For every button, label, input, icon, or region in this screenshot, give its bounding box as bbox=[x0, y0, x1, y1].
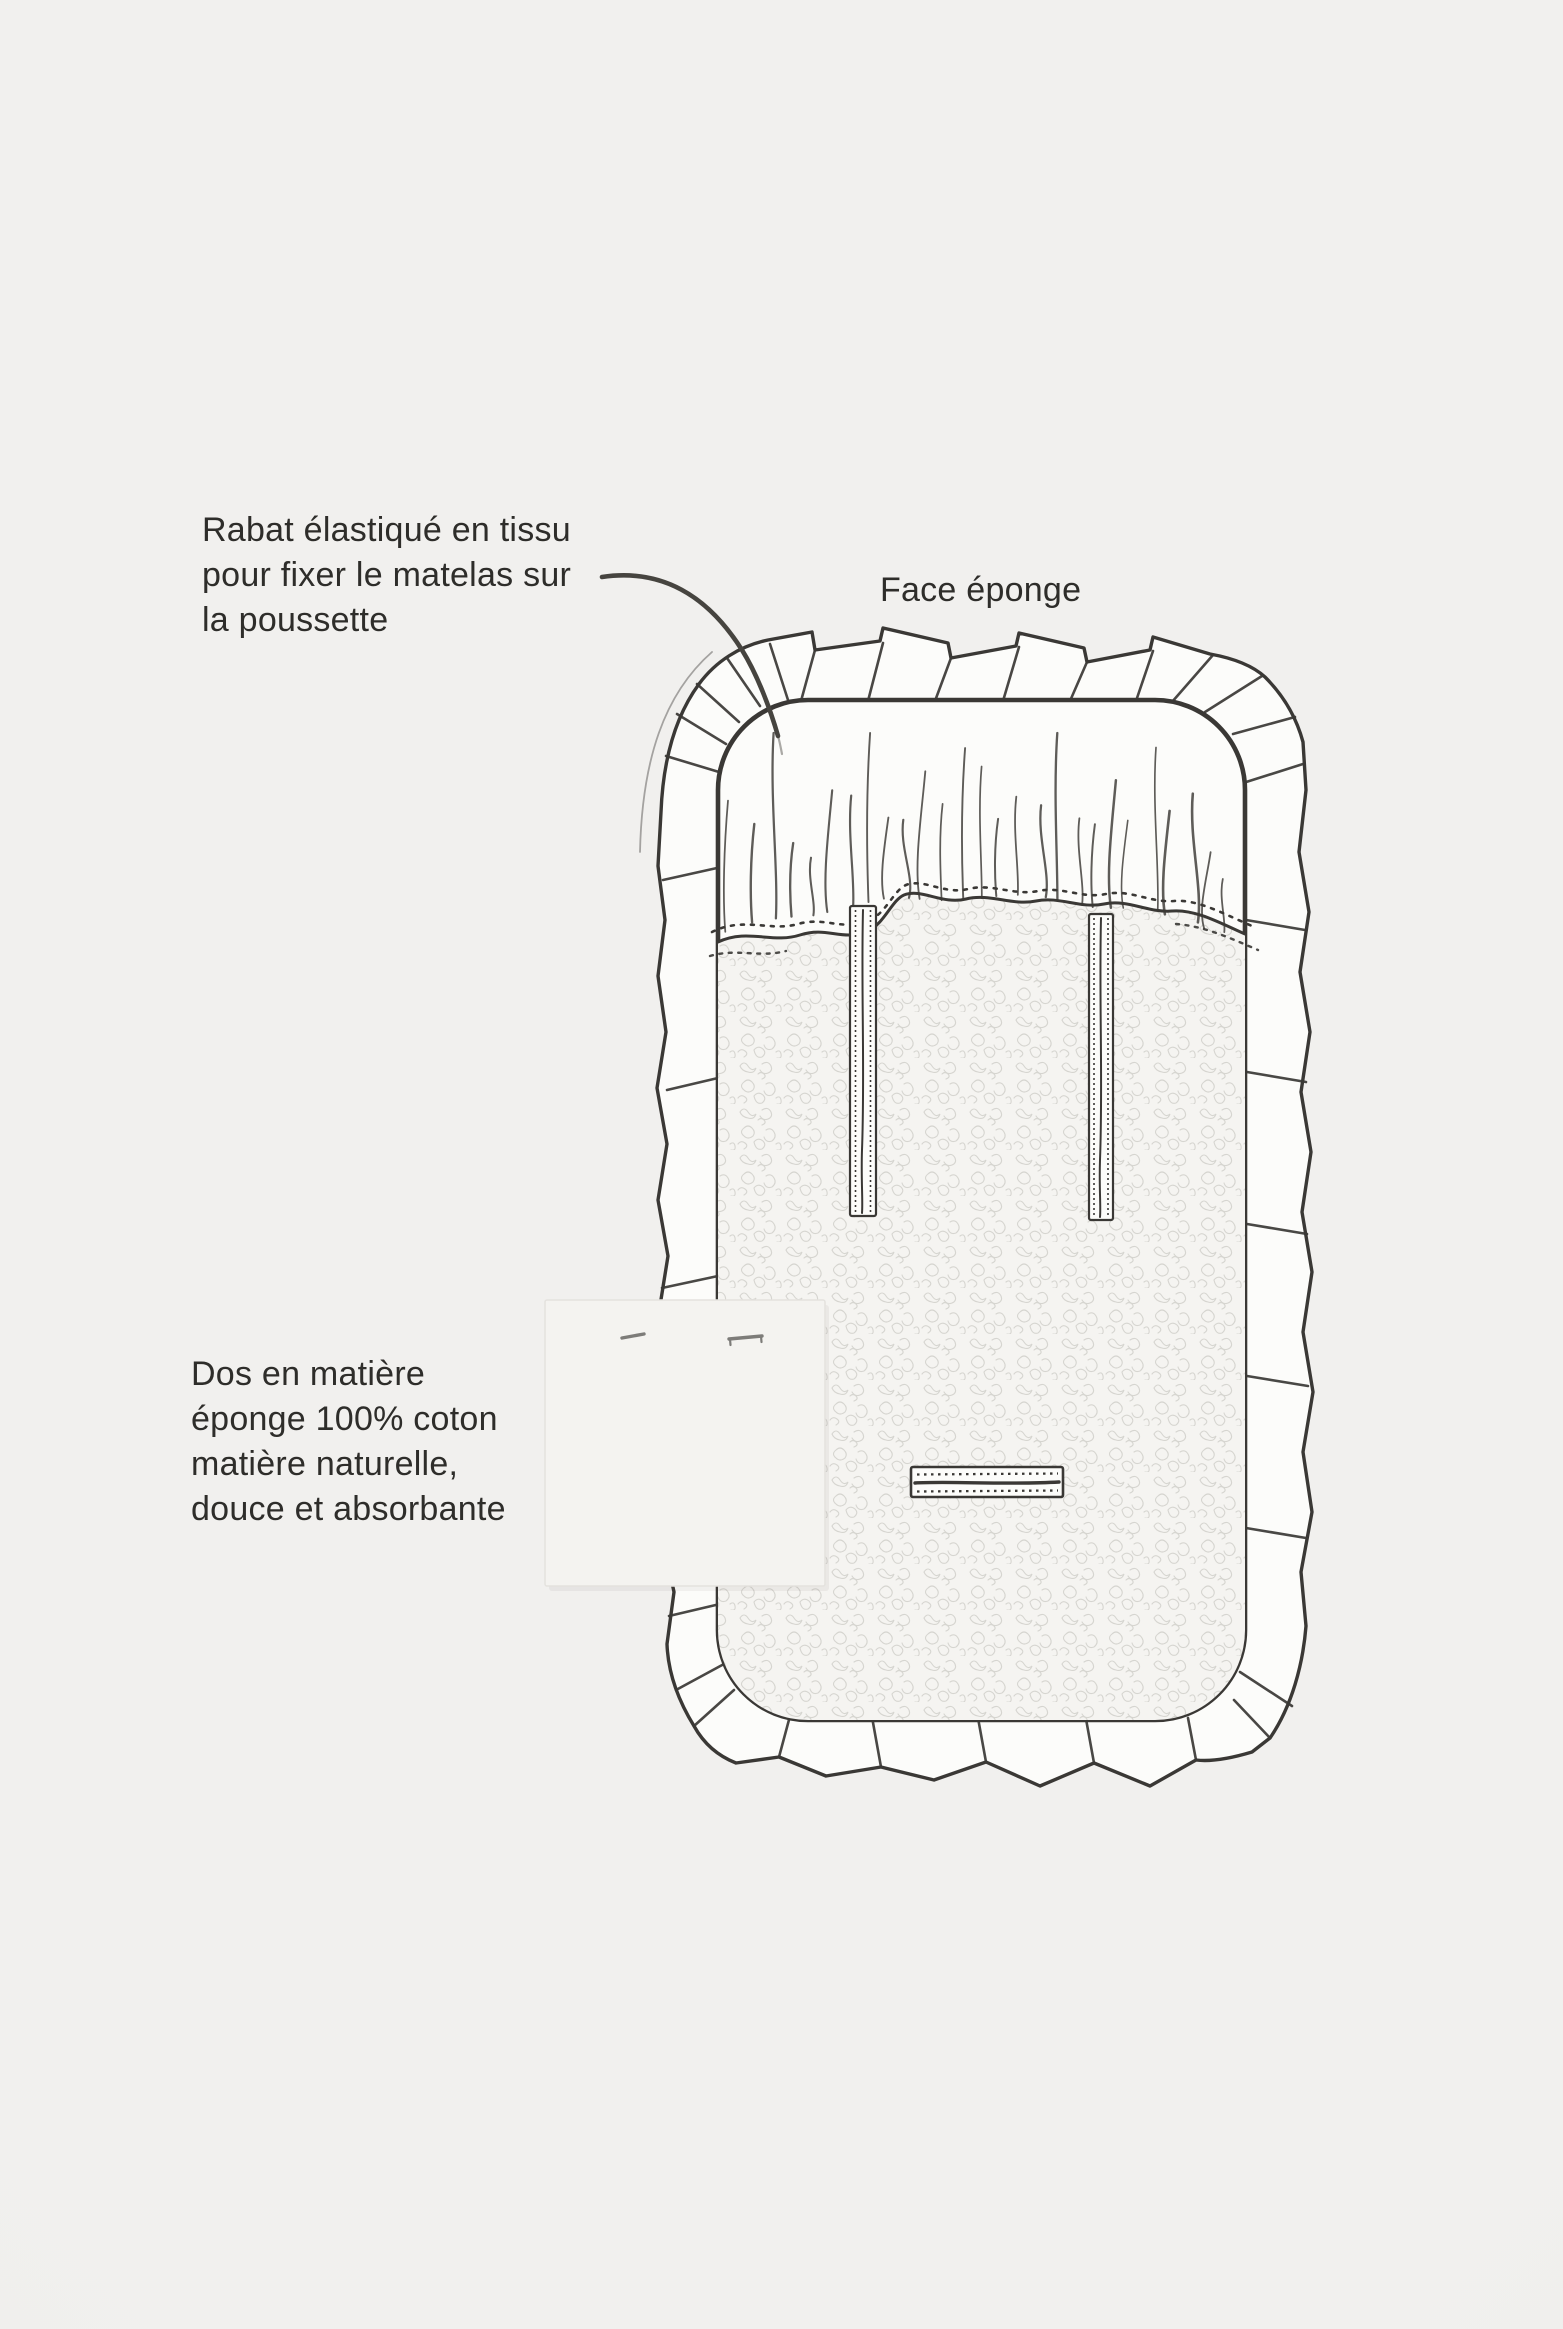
buckle-slot bbox=[911, 1467, 1063, 1497]
note-line: Rabat élastiqué en tissu bbox=[202, 508, 571, 553]
note-line: matière naturelle, bbox=[191, 1442, 506, 1487]
note-line: éponge 100% coton bbox=[191, 1397, 506, 1442]
page: Rabat élastiqué en tissu pour fixer le m… bbox=[0, 0, 1563, 2329]
annotation-face-label: Face éponge bbox=[880, 568, 1081, 613]
annotation-back-note: Dos en matière éponge 100% coton matière… bbox=[191, 1352, 506, 1532]
mattress-illustration bbox=[0, 0, 1563, 2329]
note-line: pour fixer le matelas sur bbox=[202, 553, 571, 598]
note-line: douce et absorbante bbox=[191, 1487, 506, 1532]
note-line: Dos en matière bbox=[191, 1352, 506, 1397]
annotation-flap-note: Rabat élastiqué en tissu pour fixer le m… bbox=[202, 508, 571, 643]
strap-slot-left bbox=[850, 906, 876, 1216]
strap-slot-right bbox=[1089, 914, 1113, 1220]
note-line: la poussette bbox=[202, 598, 571, 643]
fabric-swatch bbox=[545, 1300, 829, 1591]
